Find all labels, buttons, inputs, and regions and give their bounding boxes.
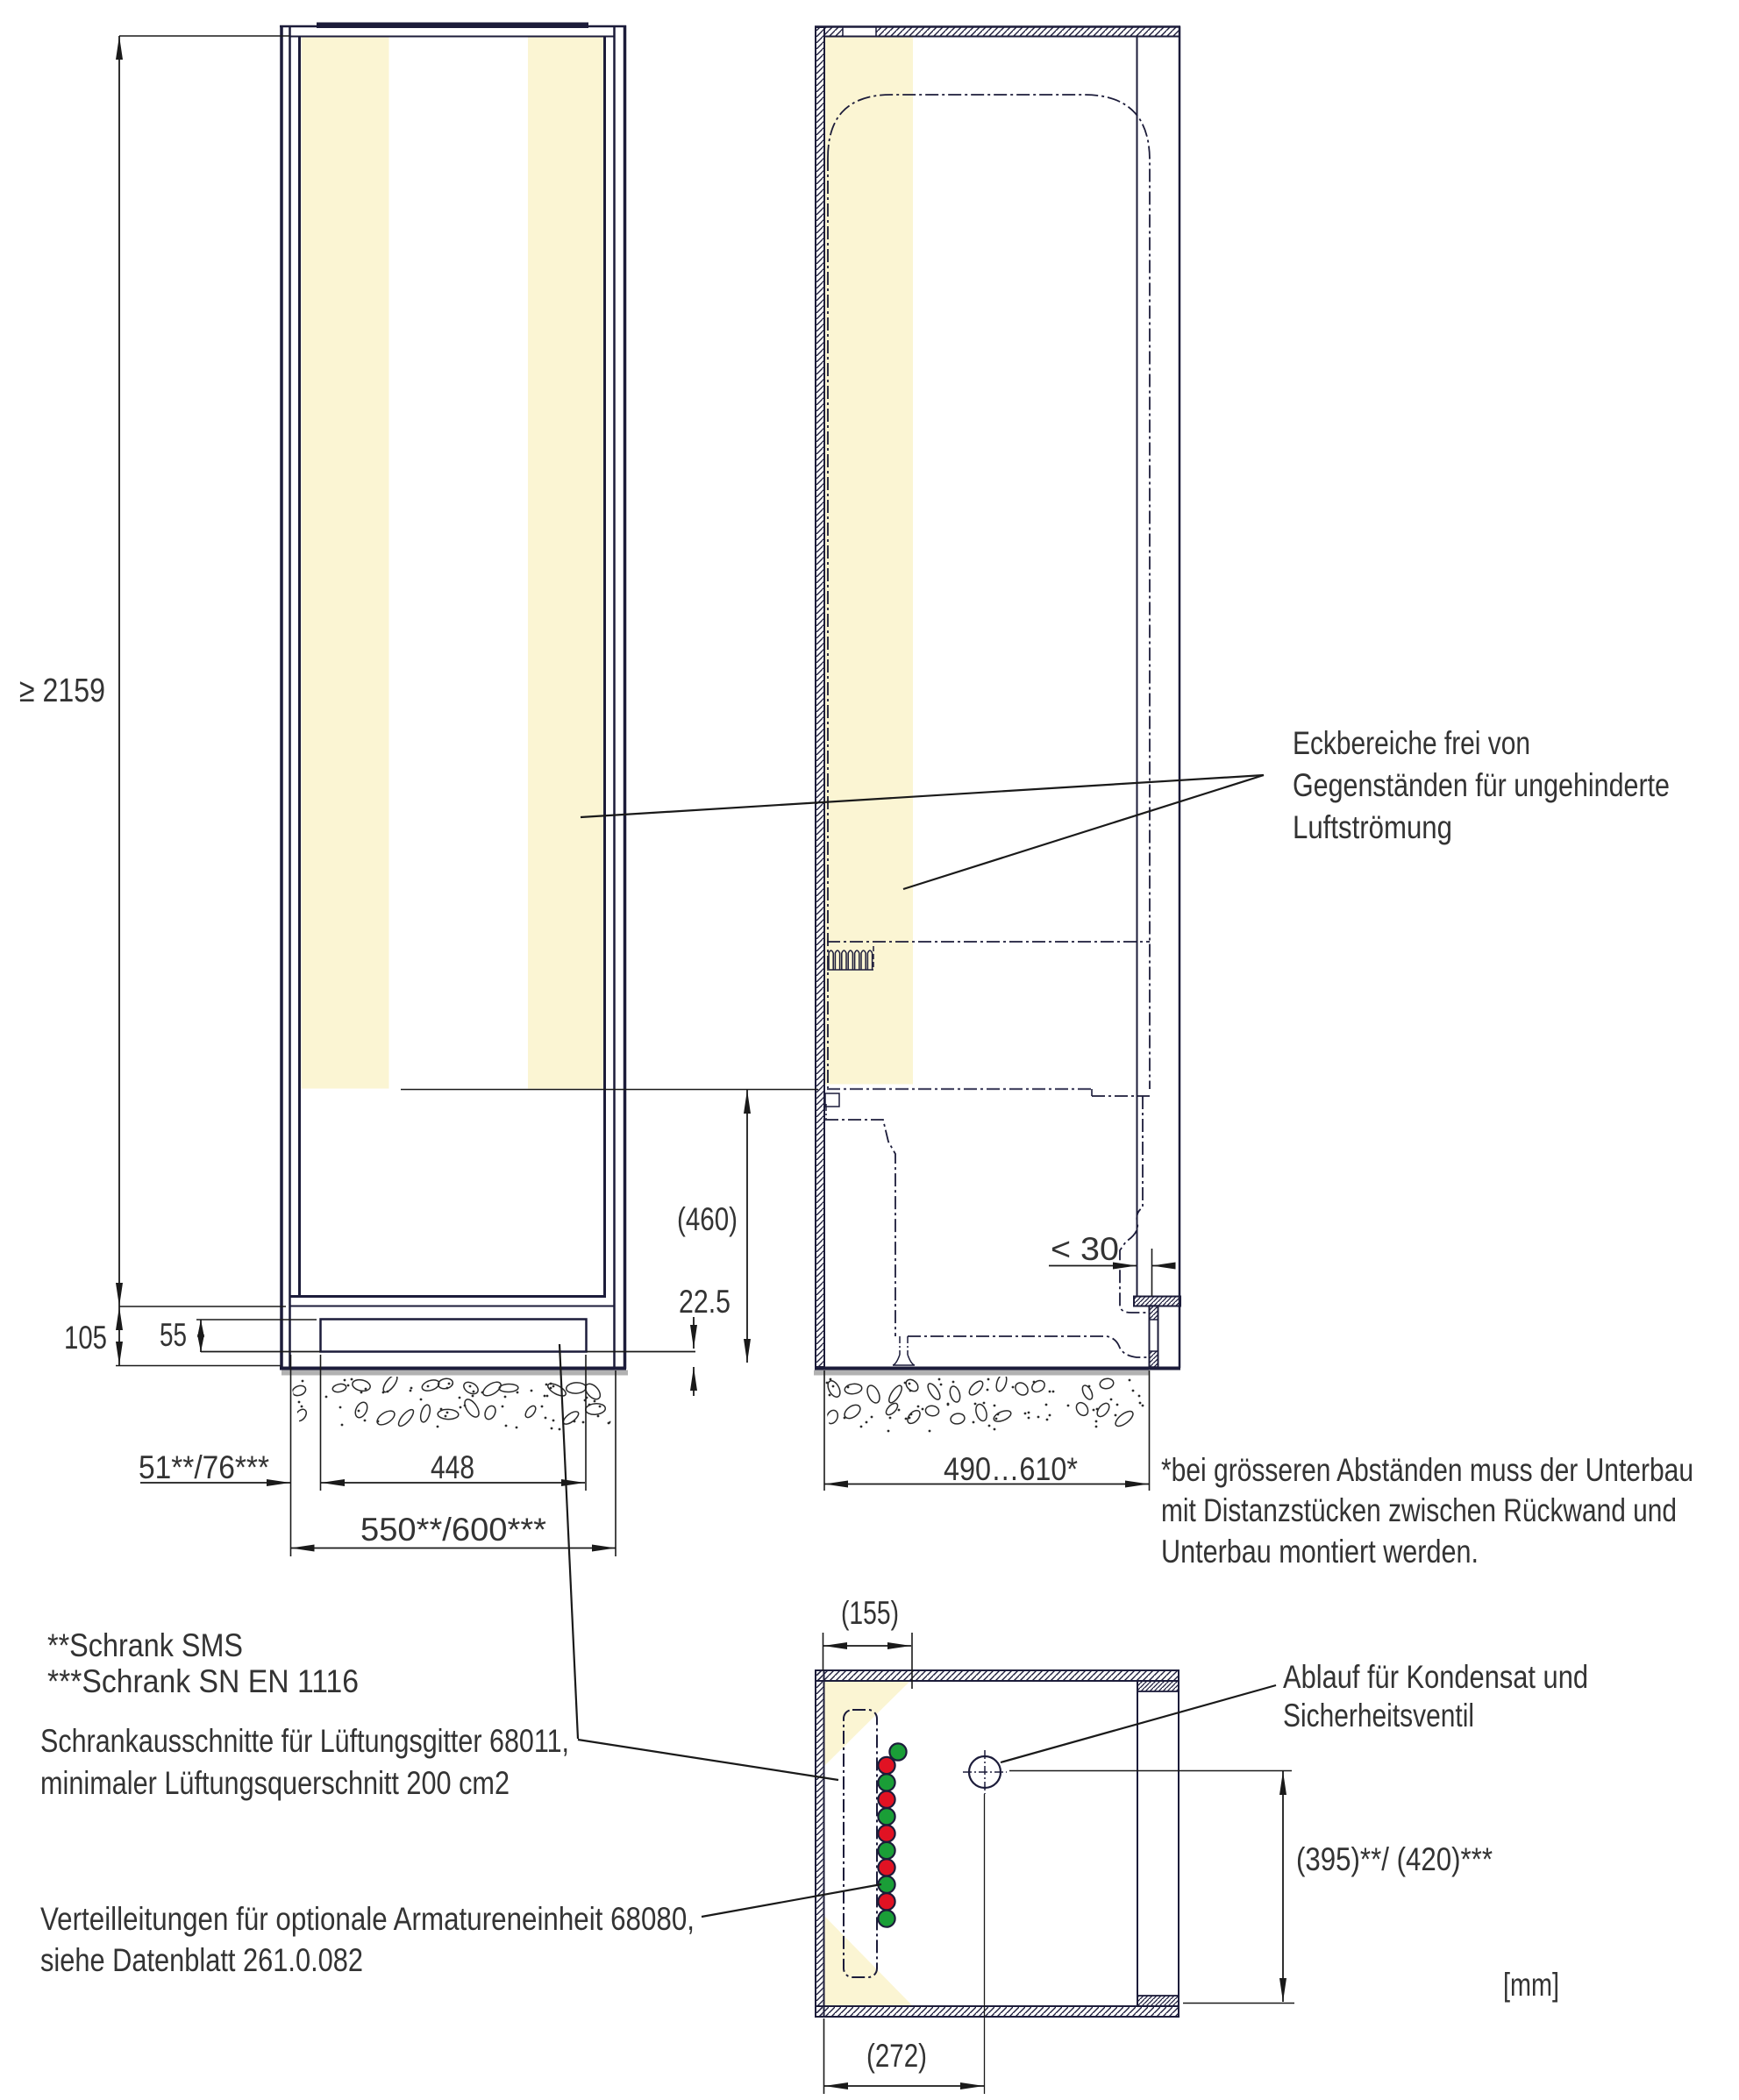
svg-text:minimaler Lüftungsquerschnitt: minimaler Lüftungsquerschnitt 200 cm2 bbox=[40, 1765, 510, 1801]
svg-text:(272): (272) bbox=[866, 2038, 927, 2074]
svg-text:mit Distanzstücken zwischen Rü: mit Distanzstücken zwischen Rückwand und bbox=[1161, 1492, 1677, 1528]
svg-text:*bei grösseren Abständen muss: *bei grösseren Abständen muss der Unterb… bbox=[1161, 1452, 1693, 1488]
svg-text:≥ 2159: ≥ 2159 bbox=[19, 673, 105, 709]
svg-text:Eckbereiche frei von: Eckbereiche frei von bbox=[1293, 725, 1530, 761]
svg-text:Sicherheitsventil: Sicherheitsventil bbox=[1283, 1698, 1474, 1733]
svg-text:448: 448 bbox=[431, 1449, 474, 1485]
svg-text:(155): (155) bbox=[841, 1595, 899, 1631]
svg-text:[mm]: [mm] bbox=[1503, 1967, 1559, 2003]
svg-text:490…610*: 490…610* bbox=[944, 1451, 1078, 1487]
svg-text:< 30: < 30 bbox=[1051, 1231, 1119, 1267]
svg-text:(460): (460) bbox=[677, 1201, 738, 1237]
svg-text:Ablauf für Kondensat und: Ablauf für Kondensat und bbox=[1283, 1659, 1588, 1695]
svg-text:550**/600***: 550**/600*** bbox=[360, 1512, 546, 1548]
svg-text:Gegenständen für ungehinderte: Gegenständen für ungehinderte bbox=[1293, 767, 1670, 803]
svg-text:Schrankausschnitte für Lüftung: Schrankausschnitte für Lüftungsgitter 68… bbox=[40, 1723, 569, 1759]
svg-text:105: 105 bbox=[64, 1320, 107, 1356]
svg-text:51**/76***: 51**/76*** bbox=[139, 1449, 269, 1485]
svg-text:***Schrank SN EN 1116: ***Schrank SN EN 1116 bbox=[47, 1663, 359, 1699]
svg-text:Unterbau montiert werden.: Unterbau montiert werden. bbox=[1161, 1534, 1479, 1570]
svg-text:**Schrank SMS: **Schrank SMS bbox=[47, 1627, 243, 1663]
svg-text:22.5: 22.5 bbox=[679, 1284, 731, 1320]
svg-text:Verteilleitungen für optionale: Verteilleitungen für optionale Armaturen… bbox=[40, 1901, 695, 1937]
svg-text:55: 55 bbox=[160, 1317, 187, 1353]
svg-text:siehe Datenblatt 261.0.082: siehe Datenblatt 261.0.082 bbox=[40, 1942, 363, 1978]
svg-text:(395)**/ (420)***: (395)**/ (420)*** bbox=[1296, 1841, 1493, 1877]
svg-text:Luftströmung: Luftströmung bbox=[1293, 809, 1452, 845]
